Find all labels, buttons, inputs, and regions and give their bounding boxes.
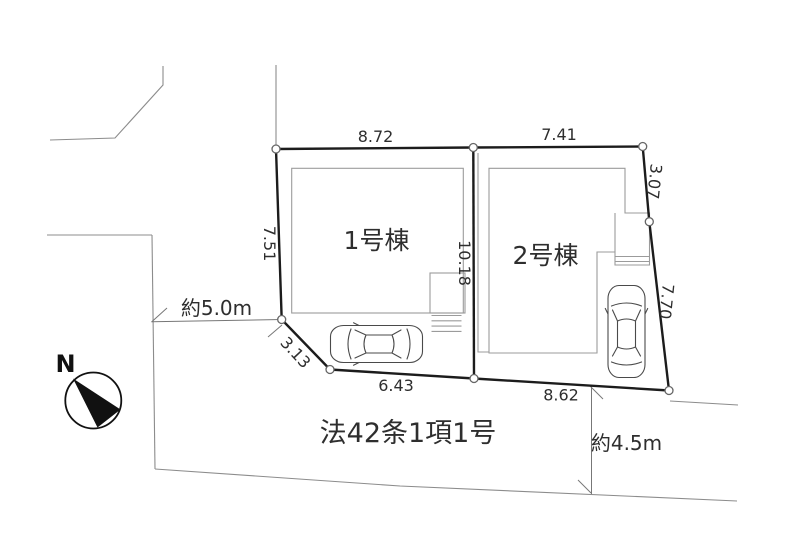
road-note-label: 法42条1項1号 — [320, 418, 497, 449]
dim-divider: 10.18 — [455, 240, 474, 286]
building-1-entry-steps — [432, 316, 462, 332]
vertex-marker — [326, 366, 334, 374]
car-1-body — [331, 326, 423, 363]
road-width-west-label: 約5.0m — [181, 296, 252, 320]
road-width-south-tick-bottom — [578, 480, 591, 493]
vertex-marker — [272, 145, 280, 153]
vertex-marker — [645, 218, 653, 226]
building-1-label: 1号棟 — [344, 226, 410, 255]
northwest-parcel-line — [50, 66, 163, 140]
dim-southwest-diag: 3.13 — [276, 333, 314, 372]
north-label: N — [55, 350, 75, 378]
road-width-west-tick-right — [268, 325, 282, 337]
compass: N — [55, 350, 121, 429]
dim-b1-top: 8.72 — [358, 127, 394, 146]
southeast-road-edge — [670, 401, 738, 405]
site-plan: N 1号棟 2号棟 法42条1項1号 約5.0m 約4.5m 8.72 7.41… — [0, 0, 800, 546]
building-2-entry-steps — [615, 257, 650, 262]
vertex-marker — [470, 375, 478, 383]
car-1 — [331, 323, 423, 365]
west-road-edge — [152, 235, 155, 469]
road-width-south-label: 約4.5m — [591, 431, 662, 455]
car-2 — [605, 286, 647, 378]
south-road-edge — [155, 469, 737, 501]
dim-east-lower: 7.70 — [655, 283, 678, 320]
dim-west: 7.51 — [260, 226, 279, 262]
vertex-marker — [469, 144, 477, 152]
building-2-label: 2号棟 — [513, 241, 579, 270]
vertex-marker — [639, 143, 647, 151]
dim-b2-top: 7.41 — [541, 125, 577, 144]
car-2-body — [608, 286, 645, 378]
dim-b1-bottom: 6.43 — [378, 376, 414, 395]
dim-east-upper: 3.07 — [643, 163, 666, 200]
road-width-west-tick-left — [152, 308, 168, 322]
building-2-offset-line — [478, 153, 489, 352]
vertex-marker — [665, 387, 673, 395]
site-plan-canvas: N 1号棟 2号棟 法42条1項1号 約5.0m 約4.5m 8.72 7.41… — [0, 0, 800, 546]
vertex-marker — [278, 316, 286, 324]
dim-b2-bottom: 8.62 — [543, 386, 579, 405]
